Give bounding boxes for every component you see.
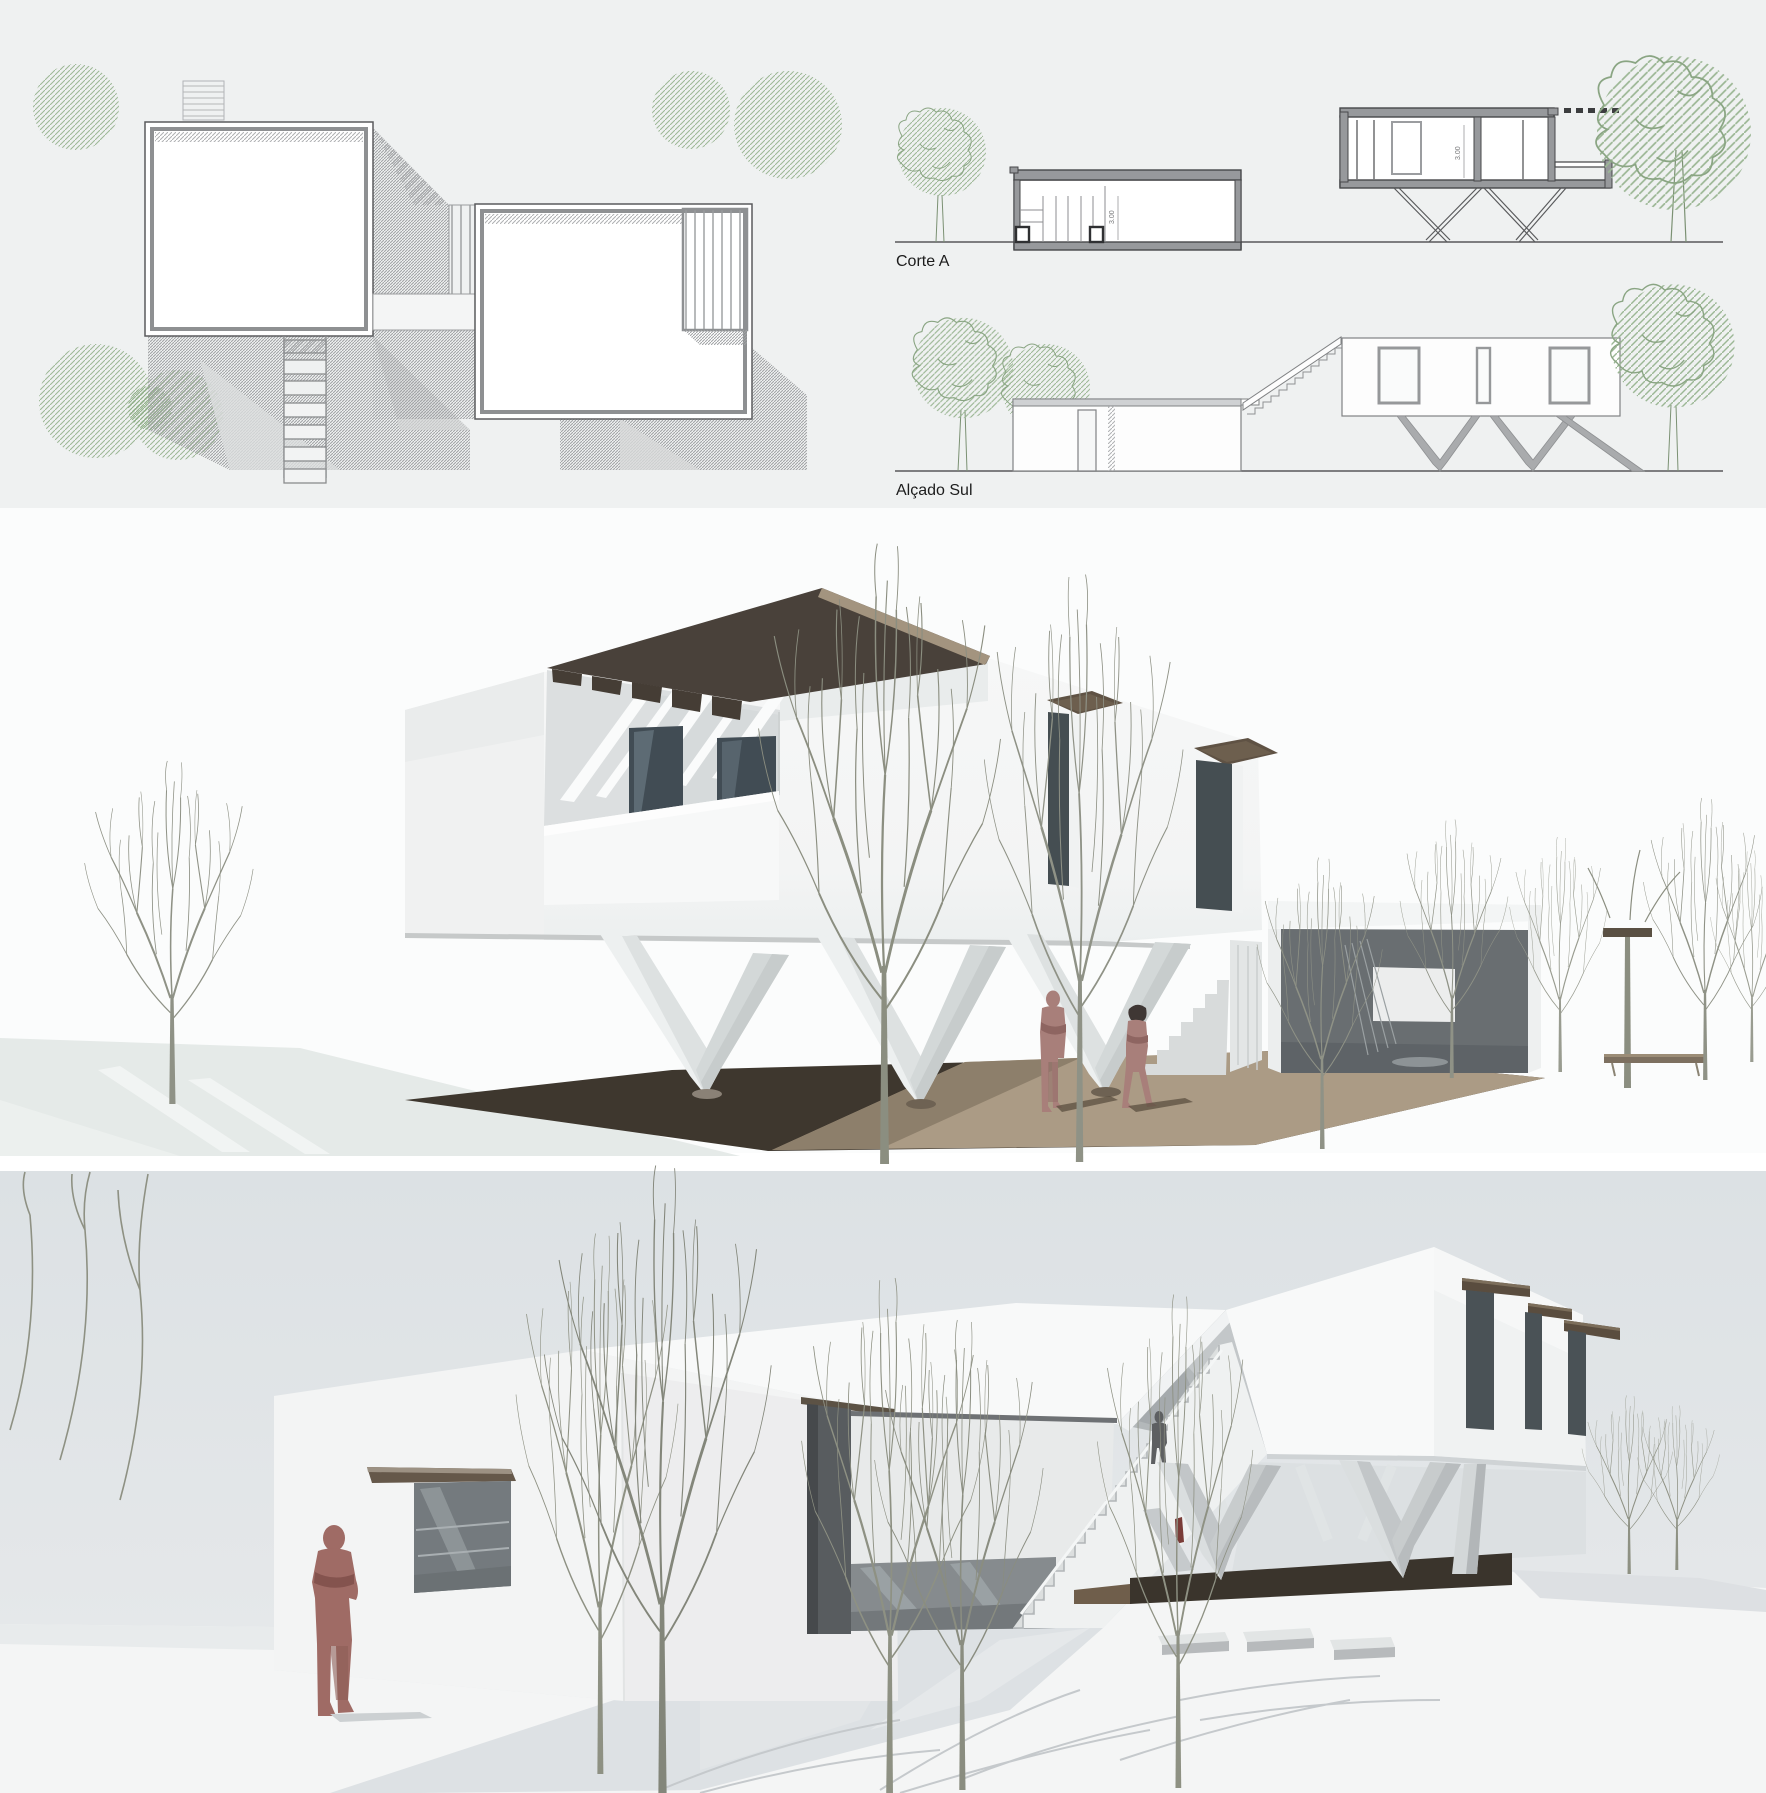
svg-text:Alçado Sul: Alçado Sul [896, 482, 973, 499]
svg-text:3.00: 3.00 [1109, 210, 1116, 224]
svg-text:3.00: 3.00 [1455, 146, 1462, 160]
svg-text:Corte A: Corte A [896, 253, 950, 270]
